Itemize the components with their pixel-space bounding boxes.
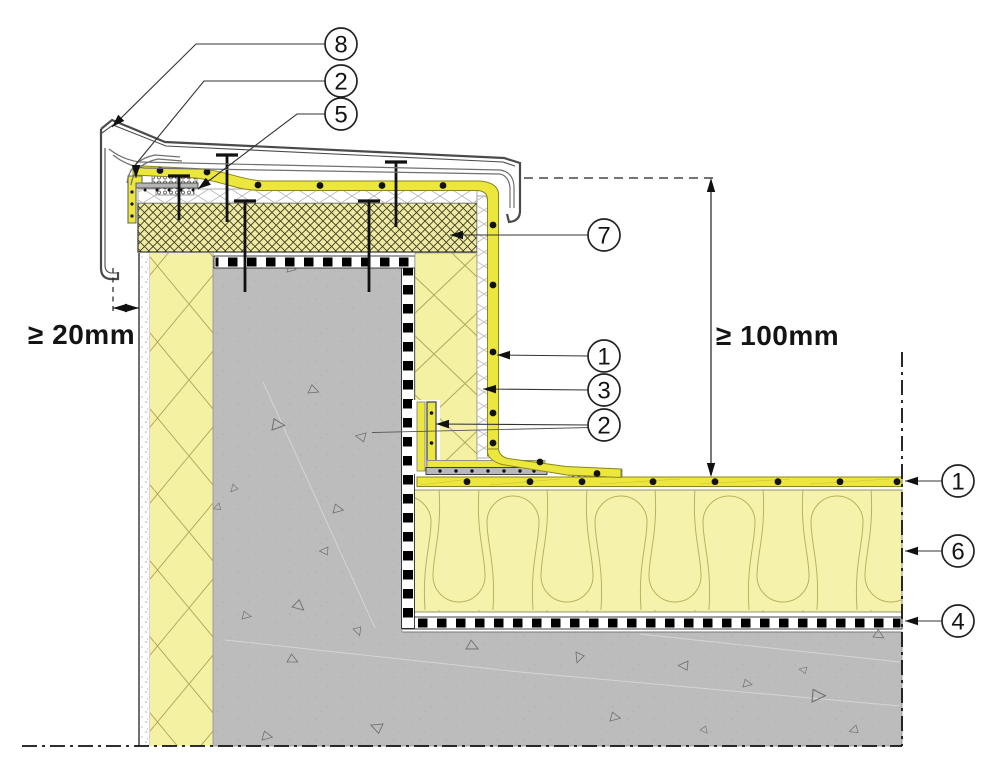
callout-number: 7: [597, 223, 610, 250]
parapet-insulation-layer-7: [138, 203, 477, 252]
callout-2: 2: [132, 65, 357, 178]
callout-number: 2: [597, 413, 610, 440]
exterior-wall-render: [139, 253, 150, 746]
leader-line: [112, 44, 325, 127]
callout-1: 1: [905, 465, 974, 497]
callout-1: 1: [497, 340, 620, 372]
callout-number: 4: [951, 609, 964, 636]
overhang-dimension: ≥ 20mm: [28, 319, 135, 350]
upstand-height-dimension: ≥ 100mm: [716, 320, 839, 351]
leader-arrowhead: [905, 547, 918, 556]
callout-number: 8: [334, 32, 347, 59]
construction-detail-svg: ≥ 100mm ≥ 20mm 8257132164: [0, 0, 1000, 774]
leader-arrowhead: [905, 617, 918, 626]
callout-number: 6: [951, 539, 964, 566]
callout-number: 1: [597, 344, 610, 371]
roof-insulation-layer-6: [414, 490, 902, 612]
arrow-up: [707, 178, 715, 192]
arrow-down: [707, 463, 715, 477]
callout-4: 4: [905, 605, 974, 637]
arrow-right: [125, 304, 139, 312]
callout-number: 2: [334, 69, 347, 96]
callout-number: 1: [951, 469, 964, 496]
leader-arrowhead: [905, 477, 918, 486]
arrow-left: [113, 304, 127, 312]
callout-number: 3: [597, 378, 610, 405]
callout-3: 3: [483, 374, 620, 406]
detail-drawing-canvas: ≥ 100mm ≥ 20mm 8257132164: [0, 0, 1000, 774]
callout-6: 6: [905, 535, 974, 567]
callout-number: 5: [334, 102, 347, 129]
exterior-wall-insulation: [150, 253, 213, 746]
callout-8: 8: [112, 28, 357, 127]
leader-line: [497, 355, 589, 356]
